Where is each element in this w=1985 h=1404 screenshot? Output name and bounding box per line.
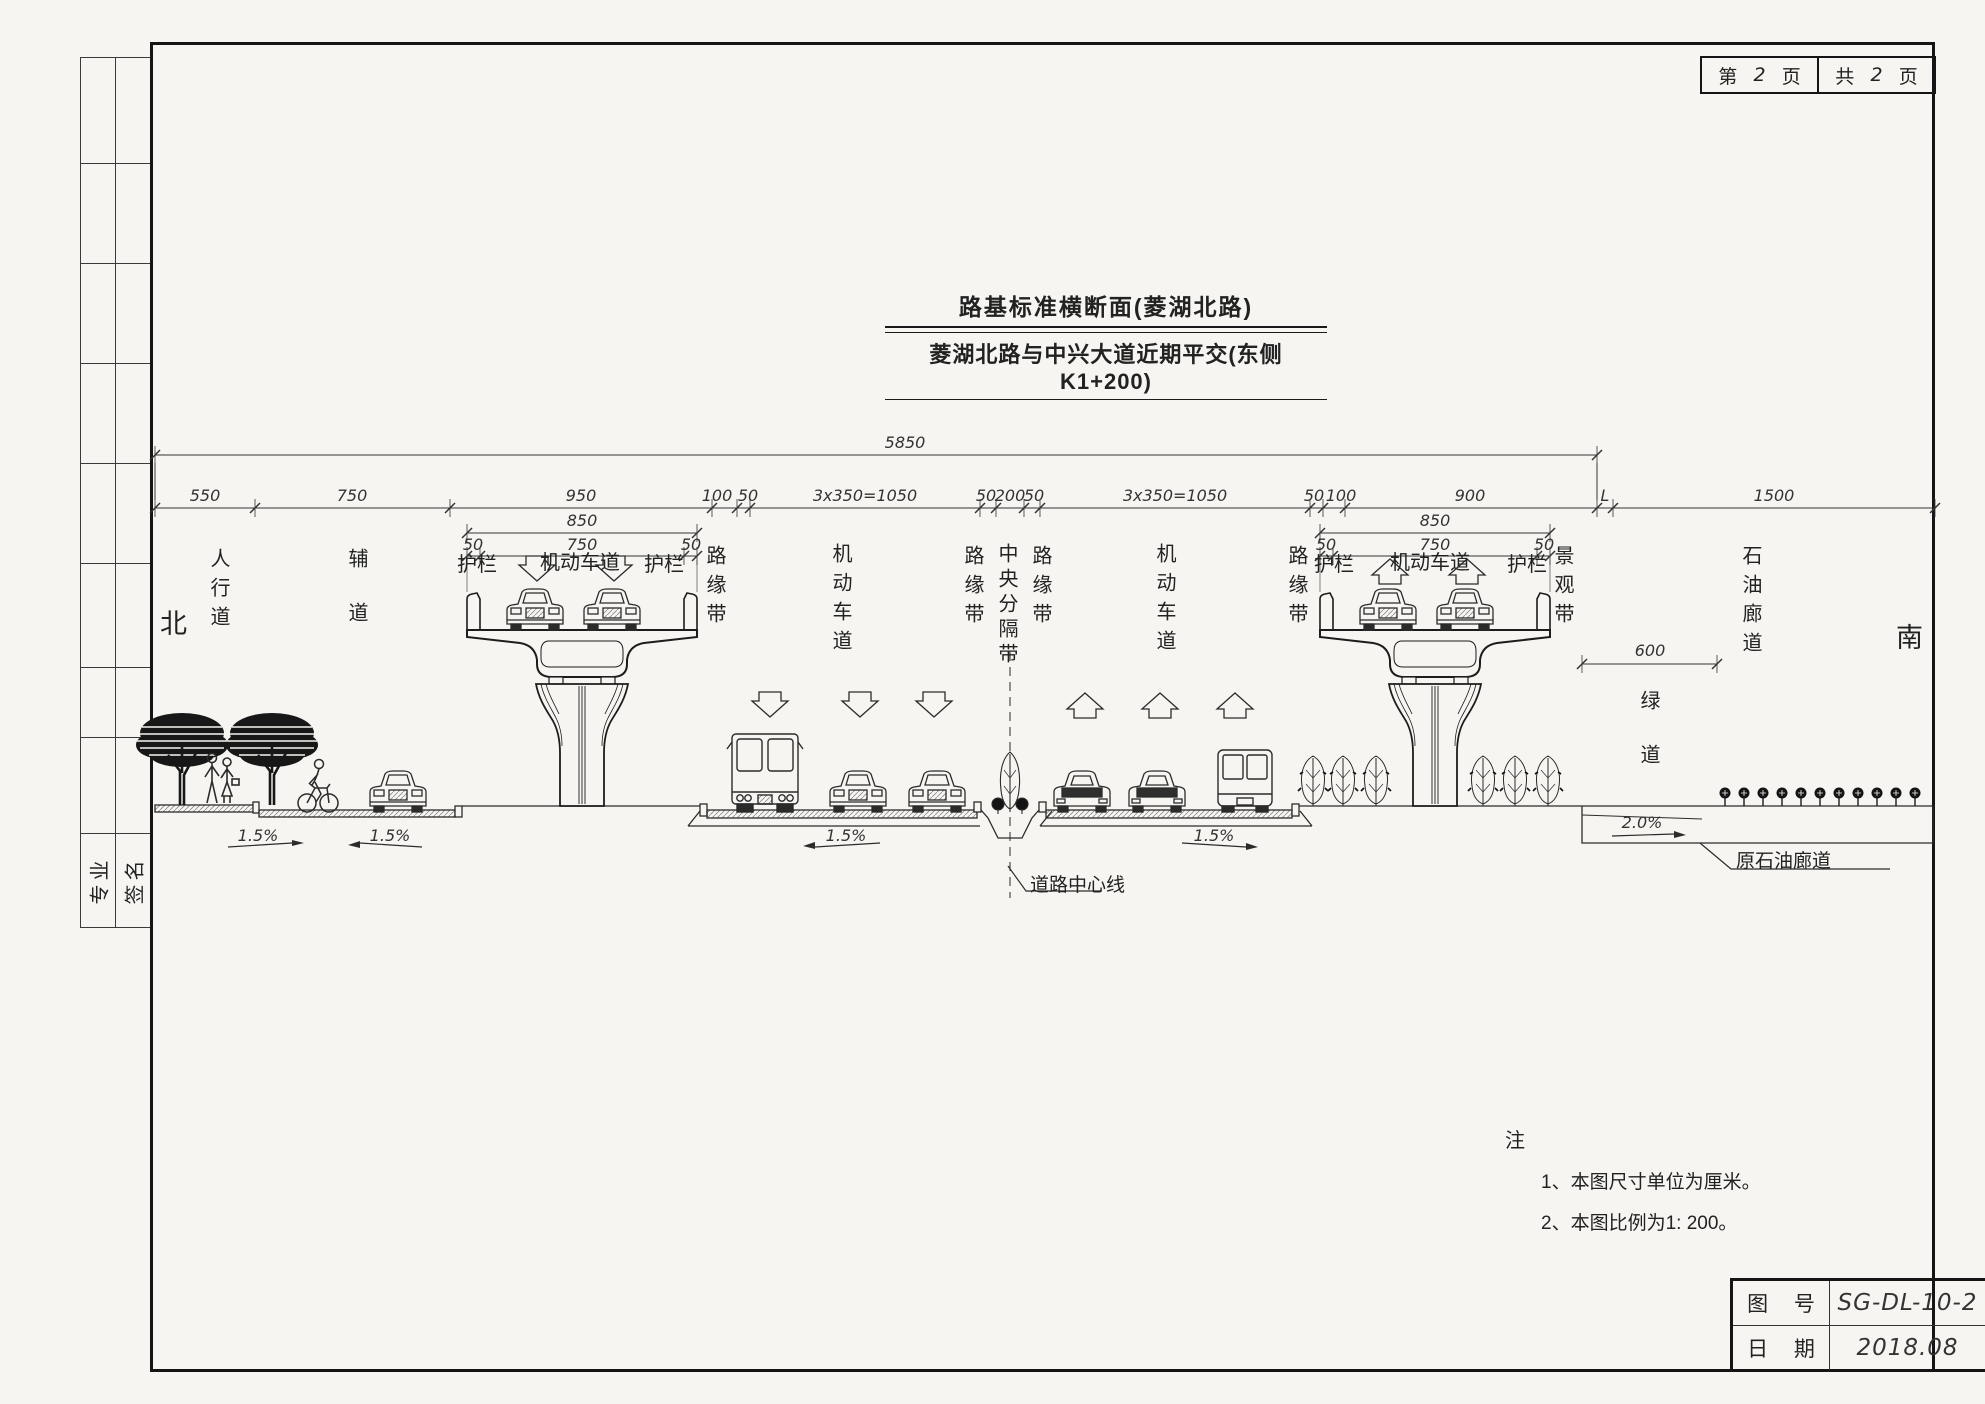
figure-number-value: SG-DL-10-2 xyxy=(1830,1281,1985,1325)
dim-segment: L xyxy=(1601,486,1610,505)
dim-total: 5850 xyxy=(885,433,926,452)
note-item: 2、本图比例为1: 200。 xyxy=(1541,1208,1761,1235)
dim-segment: 50 xyxy=(976,486,996,505)
zone-motor-lane: 机动车道 xyxy=(1390,546,1470,575)
title-sub: 菱湖北路与中兴大道近期平交(东侧K1+200) xyxy=(885,337,1327,395)
centerline-callout: 道路中心线 xyxy=(1030,870,1125,897)
margin-cell-signature: 签名 xyxy=(115,833,150,927)
dim-bridge-deck: 850 xyxy=(1420,511,1451,530)
date-value: 2018.08 xyxy=(1830,1326,1985,1370)
zone-greenway: 绿道 xyxy=(1634,690,1663,798)
zone-guardrail: 护栏 xyxy=(1507,548,1547,577)
margin-label-signature: 签名 xyxy=(118,856,147,904)
title-block: 图 号 SG-DL-10-2 日 期 2018.08 xyxy=(1730,1278,1985,1372)
zone-motor-lane: 机动车道 xyxy=(540,546,620,575)
zone-edge-strip: 路缘带 xyxy=(700,545,729,632)
compass-south: 南 xyxy=(1896,616,1923,655)
total-suffix: 页 xyxy=(1899,62,1918,89)
dim-segment: 750 xyxy=(337,486,368,505)
dim-segment: 900 xyxy=(1455,486,1486,505)
slope-label: 1.5% xyxy=(370,826,411,845)
slope-label: 1.5% xyxy=(238,826,279,845)
zone-sidewalk: 人行道 xyxy=(204,548,233,635)
dim-segment: 100 xyxy=(702,486,733,505)
zone-median: 中央分隔带 xyxy=(992,543,1021,668)
total-number: 2 xyxy=(1870,64,1882,86)
zone-motor-lane: 机动车道 xyxy=(826,543,855,659)
sheet-number: 2 xyxy=(1753,64,1765,86)
slope-label: 2.0% xyxy=(1622,813,1663,832)
dim-segment: 50 xyxy=(1304,486,1324,505)
page-number-box: 第 2 页 共 2 页 xyxy=(1700,56,1936,94)
zone-edge-strip: 路缘带 xyxy=(1282,545,1311,632)
title-main: 路基标准横断面(菱湖北路) xyxy=(885,288,1327,322)
dim-segment: 50 xyxy=(1024,486,1044,505)
dim-segment: 50 xyxy=(738,486,758,505)
drawing-title: 路基标准横断面(菱湖北路) 菱湖北路与中兴大道近期平交(东侧K1+200) xyxy=(885,288,1327,400)
margin-label-discipline: 专业 xyxy=(83,856,112,904)
dim-segment: 3x350=1050 xyxy=(1123,486,1227,505)
title-underline-single xyxy=(885,399,1327,400)
zone-guardrail: 护栏 xyxy=(457,548,497,577)
dim-segment: 550 xyxy=(190,486,221,505)
note-item: 1、本图尺寸单位为厘米。 xyxy=(1541,1167,1761,1194)
title-underline-double xyxy=(885,326,1327,333)
sheet-prefix: 第 xyxy=(1718,62,1737,89)
figure-number-label: 图 号 xyxy=(1733,1281,1830,1325)
margin-cell-discipline: 专业 xyxy=(80,833,115,927)
zone-edge-strip: 路缘带 xyxy=(958,545,987,632)
zone-edge-strip: 路缘带 xyxy=(1026,545,1055,632)
zone-scenic-belt: 景观带 xyxy=(1548,545,1577,632)
dim-segment: 200 xyxy=(995,486,1026,505)
old-oil-corridor-callout: 原石油廊道 xyxy=(1736,846,1831,873)
zone-guardrail: 护栏 xyxy=(1314,548,1354,577)
zone-aux-road: 辅道 xyxy=(342,548,371,656)
dim-segment: 950 xyxy=(566,486,597,505)
slope-label: 1.5% xyxy=(826,826,867,845)
date-label: 日 期 xyxy=(1733,1326,1830,1370)
total-prefix: 共 xyxy=(1835,62,1854,89)
notes: 注 1、本图尺寸单位为厘米。 2、本图比例为1: 200。 xyxy=(1505,1124,1761,1235)
sheet-suffix: 页 xyxy=(1782,62,1801,89)
slope-label: 1.5% xyxy=(1194,826,1235,845)
compass-north: 北 xyxy=(160,602,187,641)
notes-header: 注 xyxy=(1505,1124,1761,1153)
zone-oil-corridor: 石油廊道 xyxy=(1736,545,1765,661)
dim-segment: 100 xyxy=(1326,486,1357,505)
dim-greenway: 600 xyxy=(1635,641,1666,660)
dim-segment: 3x350=1050 xyxy=(813,486,917,505)
zone-motor-lane: 机动车道 xyxy=(1150,543,1179,659)
dim-bridge-deck: 850 xyxy=(567,511,598,530)
zone-guardrail: 护栏 xyxy=(644,548,684,577)
drawing-sheet: 专业 签名 第 2 页 共 2 页 路基标准横断面(菱湖北路) 菱湖北路与中兴大… xyxy=(0,0,1985,1404)
dim-segment: 1500 xyxy=(1754,486,1795,505)
total-sheets-cell: 共 2 页 xyxy=(1819,58,1934,92)
sheet-number-cell: 第 2 页 xyxy=(1702,58,1819,92)
